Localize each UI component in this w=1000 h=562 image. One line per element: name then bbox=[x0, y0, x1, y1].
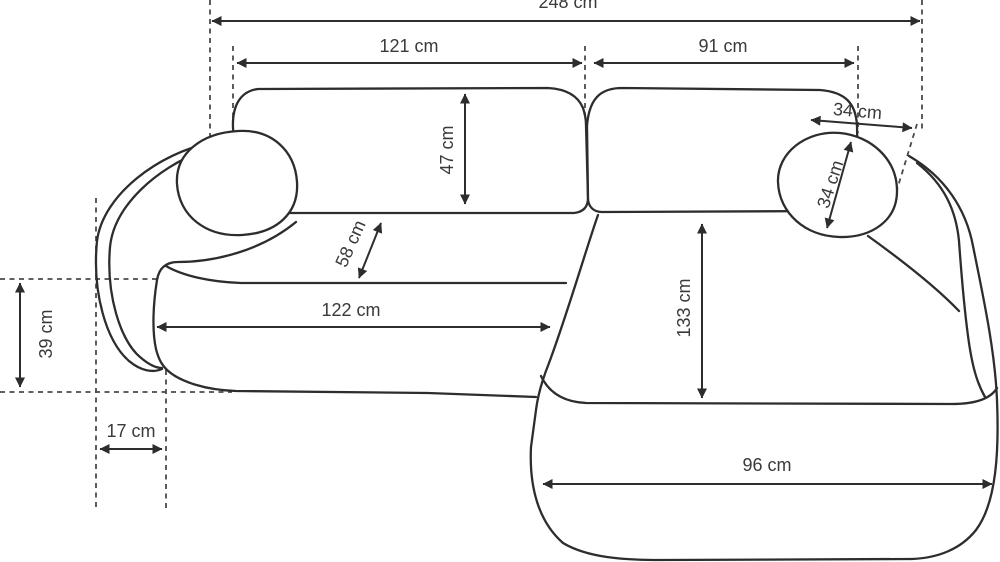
dim-armrest-front-label: 17 cm bbox=[106, 421, 155, 441]
sofa-dimension-diagram: 248 cm 121 cm 91 cm 47 cm 58 cm 122 cm 1… bbox=[0, 0, 1000, 562]
dim-armrest-side-label: 39 cm bbox=[36, 309, 56, 358]
right-armrest-inner-edge bbox=[917, 163, 985, 397]
left-headrest-pillow bbox=[177, 131, 297, 235]
chaise-cushion-front-edge bbox=[541, 376, 997, 404]
dim-right-section-label: 91 cm bbox=[698, 36, 747, 56]
dim-left-section-label: 121 cm bbox=[379, 36, 438, 56]
right-armrest-front-seam bbox=[868, 236, 959, 311]
dim-backrest-height-label: 47 cm bbox=[437, 125, 457, 174]
dim-backrest-diagonal-label: 58 cm bbox=[331, 217, 369, 270]
diagram-canvas: 248 cm 121 cm 91 cm 47 cm 58 cm 122 cm 1… bbox=[0, 0, 1000, 562]
seat-back-band-line bbox=[166, 266, 566, 283]
dim-seat-length-label: 122 cm bbox=[321, 300, 380, 320]
dim-chaise-length-label: 133 cm bbox=[674, 278, 694, 337]
chaise-left-and-front-edge bbox=[531, 215, 912, 560]
dim-total-width-label: 248 cm bbox=[538, 0, 597, 12]
sofa-outline bbox=[96, 88, 998, 560]
dim-headrest-width-label: 34 cm bbox=[832, 99, 883, 123]
dim-chaise-front-label: 96 cm bbox=[742, 455, 791, 475]
